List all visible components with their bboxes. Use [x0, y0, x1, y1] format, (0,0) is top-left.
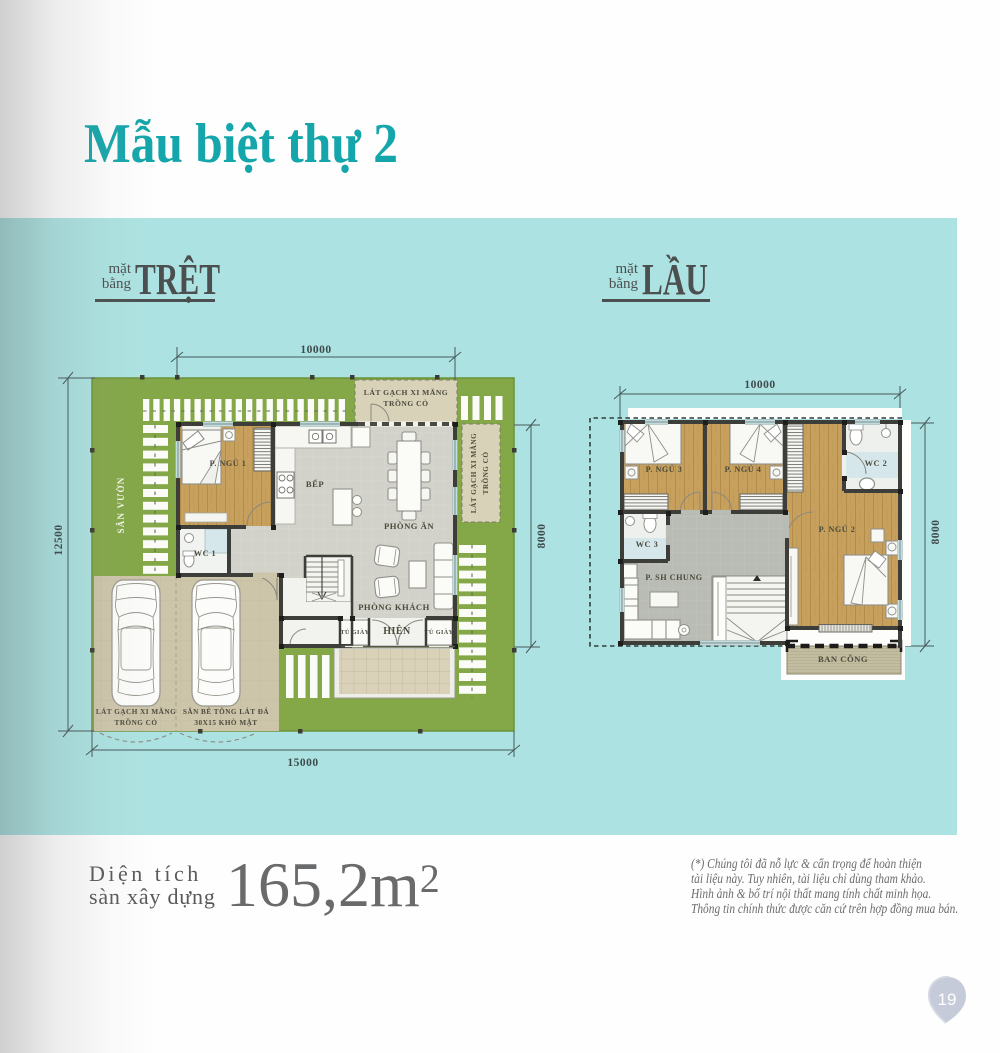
svg-text:15000: 15000: [287, 757, 318, 769]
svg-text:LÁT GẠCH XI MĂNG: LÁT GẠCH XI MĂNG: [468, 433, 478, 513]
svg-text:SÂN BÊ TÔNG LÁT ĐÁ: SÂN BÊ TÔNG LÁT ĐÁ: [183, 706, 270, 716]
svg-text:PHÒNG ĂN: PHÒNG ĂN: [384, 521, 434, 531]
svg-text:WC 2: WC 2: [865, 459, 888, 468]
svg-text:TRỒNG CỎ: TRỒNG CỎ: [383, 398, 428, 408]
svg-text:P. NGỦ 3: P. NGỦ 3: [646, 464, 683, 474]
svg-text:10000: 10000: [300, 344, 331, 356]
svg-text:LÁT GẠCH XI MĂNG: LÁT GẠCH XI MĂNG: [364, 387, 448, 397]
svg-text:10000: 10000: [744, 379, 775, 391]
svg-text:P. NGỦ 4: P. NGỦ 4: [725, 464, 762, 474]
svg-text:WC 1: WC 1: [194, 549, 216, 558]
svg-text:30X15 KHÒ MẶT: 30X15 KHÒ MẶT: [194, 717, 257, 727]
svg-text:TRỒNG CỎ: TRỒNG CỎ: [480, 452, 490, 495]
svg-text:BAN CÔNG: BAN CÔNG: [818, 654, 868, 664]
svg-text:PHÒNG KHÁCH: PHÒNG KHÁCH: [358, 602, 430, 612]
svg-text:8000: 8000: [930, 520, 942, 545]
svg-text:8000: 8000: [536, 524, 548, 549]
svg-text:P. SH CHUNG: P. SH CHUNG: [645, 573, 702, 582]
svg-text:P. NGỦ 2: P. NGỦ 2: [819, 524, 856, 534]
svg-text:TỦ GIÀY: TỦ GIÀY: [340, 628, 369, 636]
svg-text:19: 19: [938, 990, 957, 1009]
svg-text:TỦ GIÀY: TỦ GIÀY: [424, 628, 453, 636]
svg-text:BẾP: BẾP: [306, 479, 324, 489]
svg-text:WC 3: WC 3: [636, 540, 659, 549]
svg-text:P. NGỦ 1: P. NGỦ 1: [210, 458, 247, 468]
svg-text:HIÊN: HIÊN: [383, 625, 411, 637]
